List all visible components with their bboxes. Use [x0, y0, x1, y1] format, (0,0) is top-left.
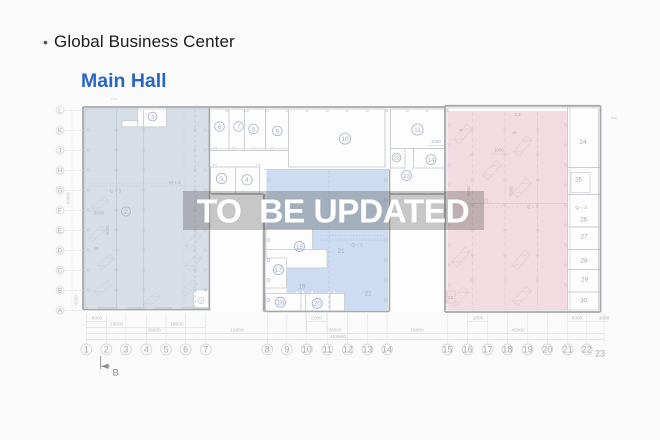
- svg-text:26: 26: [580, 217, 588, 224]
- svg-text:B: B: [58, 288, 63, 295]
- svg-text:2000: 2000: [94, 211, 105, 216]
- svg-text:Q + 3: Q + 3: [169, 180, 181, 185]
- svg-text:11: 11: [414, 127, 421, 134]
- svg-text:13: 13: [362, 345, 372, 355]
- svg-text:15: 15: [442, 345, 452, 355]
- svg-text:5: 5: [163, 345, 168, 355]
- svg-text:1000: 1000: [473, 316, 484, 322]
- svg-text:11: 11: [323, 345, 332, 355]
- svg-text:20: 20: [314, 301, 322, 308]
- svg-text:6000: 6000: [572, 316, 583, 322]
- svg-text:20: 20: [542, 345, 552, 355]
- svg-text:A: A: [58, 308, 63, 315]
- svg-text:18000: 18000: [170, 322, 184, 328]
- svg-text:6000: 6000: [74, 295, 79, 305]
- svg-text:36000: 36000: [328, 328, 342, 334]
- svg-text:1000: 1000: [494, 148, 504, 153]
- svg-text:9: 9: [284, 345, 289, 355]
- svg-text:1000: 1000: [431, 139, 441, 144]
- svg-text:31: 31: [483, 199, 489, 205]
- svg-text:6000: 6000: [509, 186, 514, 196]
- svg-text:H: H: [58, 168, 63, 175]
- svg-text:2: 2: [124, 209, 128, 216]
- svg-text:B: B: [113, 368, 119, 379]
- svg-text:K: K: [58, 128, 63, 135]
- svg-text:D: D: [58, 248, 63, 255]
- svg-text:Q = 3: Q = 3: [351, 243, 363, 248]
- svg-text:45: 45: [94, 246, 99, 251]
- svg-text:14: 14: [427, 157, 435, 164]
- svg-text:6: 6: [183, 345, 188, 355]
- svg-text:2.3: 2.3: [514, 112, 521, 117]
- svg-text:27: 27: [580, 234, 588, 241]
- svg-text:1: 1: [84, 345, 89, 355]
- svg-text:22: 22: [582, 345, 592, 355]
- svg-text:12: 12: [343, 345, 353, 355]
- svg-text:19: 19: [523, 345, 533, 355]
- svg-text:21: 21: [337, 248, 345, 255]
- svg-text:18000: 18000: [110, 322, 124, 328]
- svg-text:10: 10: [302, 345, 312, 355]
- svg-text:4: 4: [144, 345, 149, 355]
- svg-text:19: 19: [298, 283, 306, 290]
- svg-text:45: 45: [512, 130, 517, 135]
- svg-text:25: 25: [575, 177, 582, 184]
- svg-text:28: 28: [580, 258, 588, 265]
- svg-text:17: 17: [482, 345, 492, 355]
- svg-text:9: 9: [276, 128, 280, 135]
- svg-text:18: 18: [502, 345, 512, 355]
- svg-text:1: 1: [200, 299, 203, 305]
- svg-text:45: 45: [459, 128, 464, 133]
- svg-text:18: 18: [277, 300, 285, 307]
- svg-text:C: C: [58, 268, 63, 275]
- svg-text:22: 22: [364, 290, 372, 297]
- svg-text:J: J: [58, 148, 61, 155]
- svg-text:L: L: [58, 108, 62, 115]
- svg-text:TO BE UPDATED: TO BE UPDATED: [197, 194, 470, 231]
- svg-text:Q = 3: Q = 3: [527, 204, 539, 209]
- svg-text:153600: 153600: [330, 334, 346, 340]
- svg-text:30: 30: [580, 298, 588, 305]
- svg-text:14: 14: [382, 345, 392, 355]
- svg-text:19400: 19400: [410, 328, 424, 334]
- svg-text:E: E: [58, 228, 63, 235]
- svg-text:5: 5: [220, 176, 224, 183]
- svg-text:8: 8: [252, 126, 256, 133]
- svg-text:60000: 60000: [66, 191, 71, 204]
- svg-text:3000: 3000: [599, 316, 610, 322]
- svg-text:15: 15: [296, 244, 304, 251]
- svg-text:23: 23: [595, 349, 605, 359]
- svg-text:4: 4: [245, 177, 249, 184]
- svg-text:7: 7: [203, 345, 208, 355]
- svg-text:Q = 3: Q = 3: [575, 205, 587, 210]
- svg-text:29: 29: [581, 277, 589, 284]
- svg-text:2: 2: [104, 345, 109, 355]
- svg-text:6: 6: [218, 124, 222, 131]
- svg-text:12: 12: [393, 156, 399, 162]
- svg-text:G: G: [57, 188, 62, 195]
- svg-text:7: 7: [237, 124, 241, 131]
- svg-text:3: 3: [123, 345, 128, 355]
- svg-text:F: F: [58, 208, 62, 215]
- svg-text:17: 17: [275, 267, 283, 274]
- svg-text:45000: 45000: [511, 328, 525, 334]
- svg-text:10: 10: [341, 136, 349, 143]
- svg-text:32: 32: [448, 295, 454, 301]
- svg-text:21: 21: [563, 345, 573, 355]
- svg-text:16000: 16000: [230, 328, 244, 334]
- svg-text:24: 24: [579, 139, 587, 146]
- svg-text:36000: 36000: [147, 328, 161, 334]
- svg-text:2000: 2000: [311, 316, 322, 322]
- svg-text:16: 16: [463, 345, 473, 355]
- svg-text:6000: 6000: [92, 316, 103, 322]
- svg-text:13: 13: [403, 173, 411, 180]
- svg-text:8: 8: [265, 345, 270, 355]
- svg-text:6000: 6000: [105, 225, 110, 235]
